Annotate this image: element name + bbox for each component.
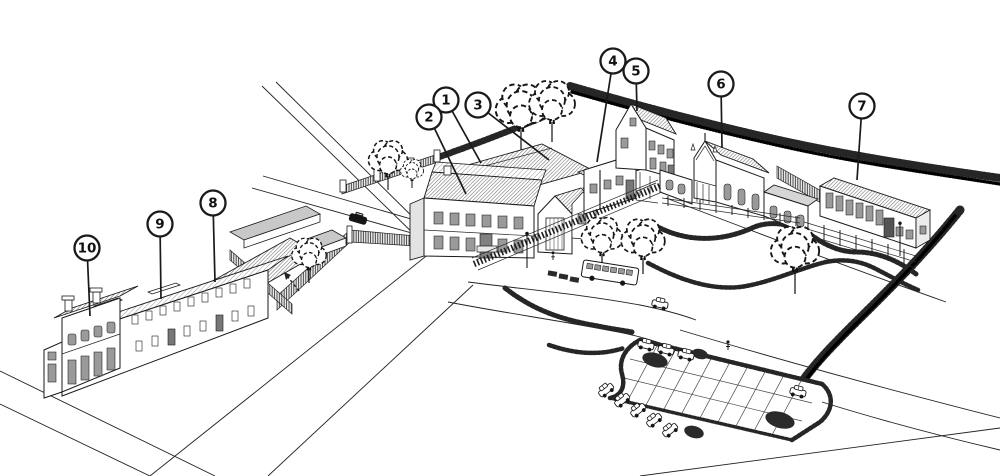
marker-number: 10	[78, 241, 97, 257]
lower-left-road-edge-1	[0, 371, 215, 476]
marker-number: 5	[631, 64, 640, 80]
roof-skylight-2	[148, 283, 180, 294]
lower-left-road-edge-2	[0, 404, 150, 476]
parked-car	[660, 420, 680, 439]
site-plan-figure: 12345678910	[0, 0, 1000, 476]
annex-window	[48, 352, 56, 360]
building-2-end-wall	[410, 198, 424, 260]
marker-number: 6	[716, 77, 725, 93]
shrub-patch	[683, 423, 706, 440]
tree	[621, 219, 665, 260]
marker-number: 7	[857, 99, 866, 115]
marker-7: 7	[850, 94, 875, 181]
chapel-pinnacle-left	[691, 144, 695, 150]
entrance-road-edge-right	[268, 285, 473, 476]
pedestrian	[551, 251, 555, 260]
gate-post-1	[347, 226, 352, 243]
marker-6: 6	[709, 72, 734, 149]
left-wing-window-1	[666, 180, 673, 190]
road-past-parking	[822, 402, 1000, 450]
building-7-door	[884, 218, 894, 237]
marker-number: 9	[155, 217, 164, 233]
lawn-loop-border-lower	[648, 260, 918, 290]
marker-number: 4	[608, 54, 617, 70]
dark-car-crossing	[348, 210, 368, 225]
annex-door	[48, 364, 56, 382]
marker-number: 3	[473, 98, 482, 114]
pedestrian	[726, 340, 730, 350]
marker-number: 2	[424, 110, 433, 126]
car-on-road	[651, 296, 669, 311]
chapel-left-wing	[660, 170, 692, 204]
marker-number: 1	[441, 93, 450, 109]
marker-8: 8	[201, 191, 226, 283]
building-3-barn-door	[546, 218, 564, 250]
left-wing-window-2	[678, 184, 685, 194]
parked-car	[644, 410, 664, 429]
bus	[581, 260, 639, 288]
path-border-2	[549, 345, 624, 353]
marker-leader-line	[597, 61, 613, 162]
parking-lot	[596, 337, 831, 440]
building-2-chimney	[444, 166, 451, 175]
plank-fence-short	[350, 230, 416, 246]
roads	[0, 82, 1000, 476]
site-illustration: 12345678910	[0, 0, 1000, 476]
parked-bikes-row	[548, 270, 580, 282]
marker-number: 8	[208, 196, 217, 212]
